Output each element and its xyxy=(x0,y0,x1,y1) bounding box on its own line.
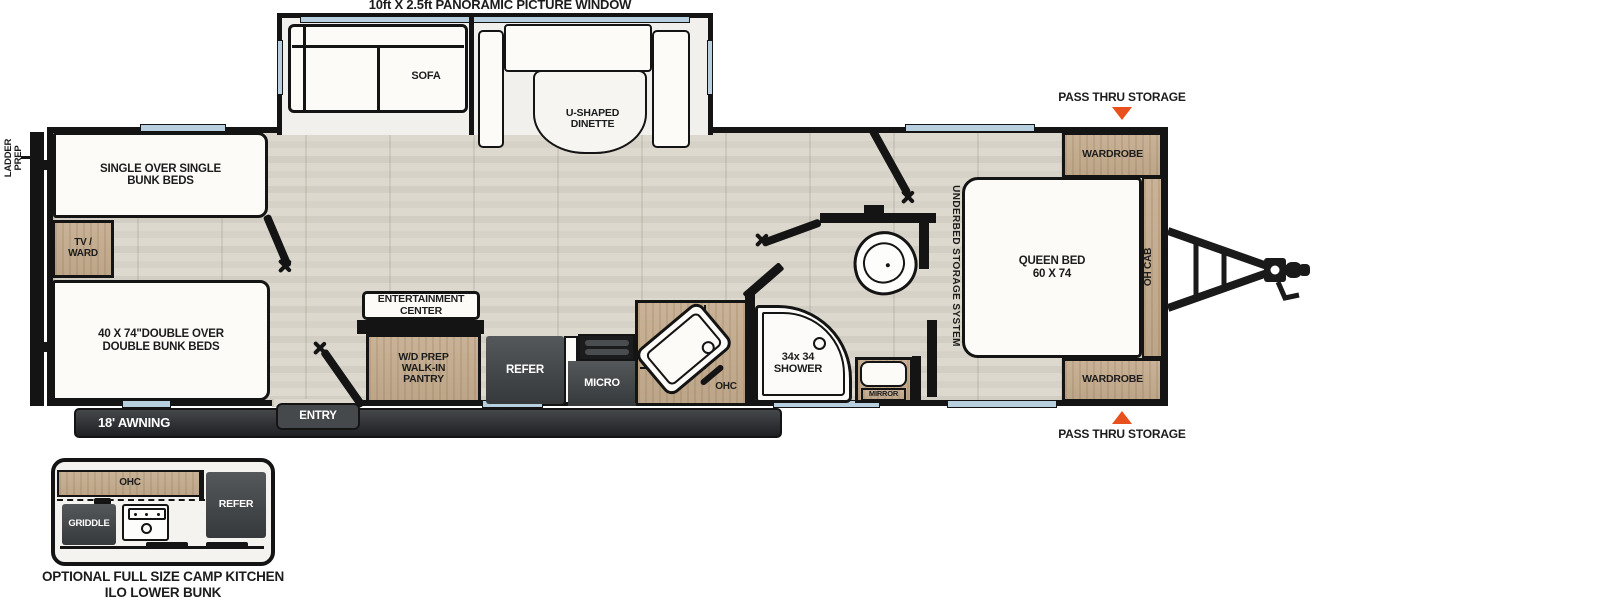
entry-tab: ENTRY xyxy=(276,403,360,430)
inset-stove-knob-strip xyxy=(128,508,166,520)
wardrobe-bottom: WARDROBE xyxy=(1062,358,1163,402)
wardrobe-bottom-label: WARDROBE xyxy=(1082,374,1143,385)
door-hinge-cross xyxy=(276,258,292,274)
inset-ohc: OHC xyxy=(57,470,203,497)
refer-label: REFER xyxy=(506,364,544,376)
oh-cab-label: OH CAB xyxy=(1144,232,1160,302)
pass-thru-arrow-bottom xyxy=(1112,411,1132,424)
inset-counter-tab-2 xyxy=(206,542,248,549)
ladder-prep-label: LADDER PREP xyxy=(4,128,26,188)
cooktop xyxy=(578,334,635,361)
dinette-bench-right xyxy=(652,30,690,148)
single-bunk-label: SINGLE OVER SINGLE BUNK BEDS xyxy=(100,163,221,188)
pass-thru-arrow-top xyxy=(1112,107,1132,120)
mirror-label-box: MIRROR xyxy=(861,388,906,401)
bumper-tab-top xyxy=(44,160,49,170)
sofa-armrest-line xyxy=(303,27,306,110)
page-title: 10ft X 2.5ft PANORAMIC PICTURE WINDOW xyxy=(330,0,670,12)
stove-knob-dot xyxy=(134,513,137,516)
tv-wardrobe-label: TV / WARD xyxy=(68,238,98,260)
inset-ohc-label: OHC xyxy=(119,478,141,489)
window-rear-top xyxy=(140,124,226,132)
queen-bed-label: QUEEN BED 60 X 74 xyxy=(1019,255,1086,280)
bath-wall-bump xyxy=(864,205,884,214)
double-bunk-beds: 40 X 74"DOUBLE OVER DOUBLE BUNK BEDS xyxy=(52,280,270,401)
micro-label: MICRO xyxy=(584,378,620,390)
inset-caption: OPTIONAL FULL SIZE CAMP KITCHEN ILO LOWE… xyxy=(28,569,298,600)
bedroom-wall-lower xyxy=(927,320,937,397)
inset-stove-burner xyxy=(141,523,152,534)
inset-griddle-label: GRIDDLE xyxy=(68,519,109,529)
pantry-label: W/D PREP WALK-IN PANTRY xyxy=(398,352,448,386)
inset-stove xyxy=(122,504,169,541)
wardrobe-top-label: WARDROBE xyxy=(1082,149,1143,160)
entertainment-tv-bar xyxy=(357,320,484,334)
slideout-window-left xyxy=(277,40,283,95)
window-bedroom-top xyxy=(905,124,1035,132)
double-bunk-label: 40 X 74"DOUBLE OVER DOUBLE BUNK BEDS xyxy=(98,328,224,353)
walkin-pantry: W/D PREP WALK-IN PANTRY xyxy=(366,334,481,403)
entertainment-center: ENTERTAINMENT CENTER xyxy=(362,291,480,320)
kitchen-ohc-label: OHC xyxy=(706,382,746,393)
pass-thru-top-label: PASS THRU STORAGE xyxy=(1032,91,1212,104)
rear-bumper xyxy=(30,132,44,406)
dinette-bench-top xyxy=(504,24,652,72)
single-bunk-beds: SINGLE OVER SINGLE BUNK BEDS xyxy=(53,132,268,218)
door-hinge-cross xyxy=(899,189,915,205)
inset-refrigerator: REFER xyxy=(206,472,266,538)
trailer-hitch xyxy=(1166,212,1314,327)
entertainment-center-label: ENTERTAINMENT CENTER xyxy=(378,294,464,317)
stove-knob-dot xyxy=(157,513,160,516)
inset-griddle: GRIDDLE xyxy=(62,504,116,545)
inset-counter-tab-1 xyxy=(146,542,188,549)
microwave: MICRO xyxy=(568,361,636,406)
underbed-storage-label: UNDERBED STORAGE SYSTEM xyxy=(944,177,960,355)
shower-label: 34x 34 SHOWER xyxy=(758,352,838,376)
toilet-bowl xyxy=(858,237,911,289)
stove-knob-dot xyxy=(145,513,148,516)
shower-drain xyxy=(813,337,826,350)
queen-bed: QUEEN BED 60 X 74 xyxy=(962,177,1142,358)
wardrobe-top: WARDROBE xyxy=(1062,132,1163,178)
window-bedroom-bottom xyxy=(947,400,1057,408)
door-hinge-cross xyxy=(311,340,327,356)
inset-ohc-notch xyxy=(199,470,204,501)
bumper-tab-bottom xyxy=(44,342,49,352)
vanity-sink xyxy=(860,361,907,387)
dinette-label: U-SHAPED DINETTE xyxy=(545,108,640,131)
window-bunk-bottom xyxy=(122,400,171,408)
refrigerator: REFER xyxy=(486,336,564,404)
vanity-side-wall xyxy=(912,356,921,403)
tv-wardrobe-cabinet: TV / WARD xyxy=(52,220,114,278)
dinette-bench-left xyxy=(478,30,504,148)
mirror-label: MIRROR xyxy=(869,390,898,398)
door-hinge-cross xyxy=(753,232,769,248)
cooktop-grate-1 xyxy=(585,340,629,346)
cooktop-grate-2 xyxy=(585,349,629,355)
floorplan-diagram: 10ft X 2.5ft PANORAMIC PICTURE WINDOW LA… xyxy=(0,0,1600,600)
sofa-label: SOFA xyxy=(398,71,454,83)
slideout-divider-wall xyxy=(469,16,474,135)
inset-refer-label: REFER xyxy=(219,499,254,510)
pass-thru-bottom-label: PASS THRU STORAGE xyxy=(1032,428,1212,441)
inset-ohc-dashed-line xyxy=(57,499,205,501)
slideout-window-right xyxy=(707,40,713,95)
bath-wall-left xyxy=(745,291,755,403)
sofa-seat-divider xyxy=(377,48,380,110)
entry-label: ENTRY xyxy=(299,410,337,422)
panoramic-picture-window xyxy=(300,16,690,23)
bath-wall-right-upper xyxy=(919,213,929,269)
awning-label: 18' AWNING xyxy=(98,416,170,430)
awning: 18' AWNING xyxy=(74,408,782,438)
